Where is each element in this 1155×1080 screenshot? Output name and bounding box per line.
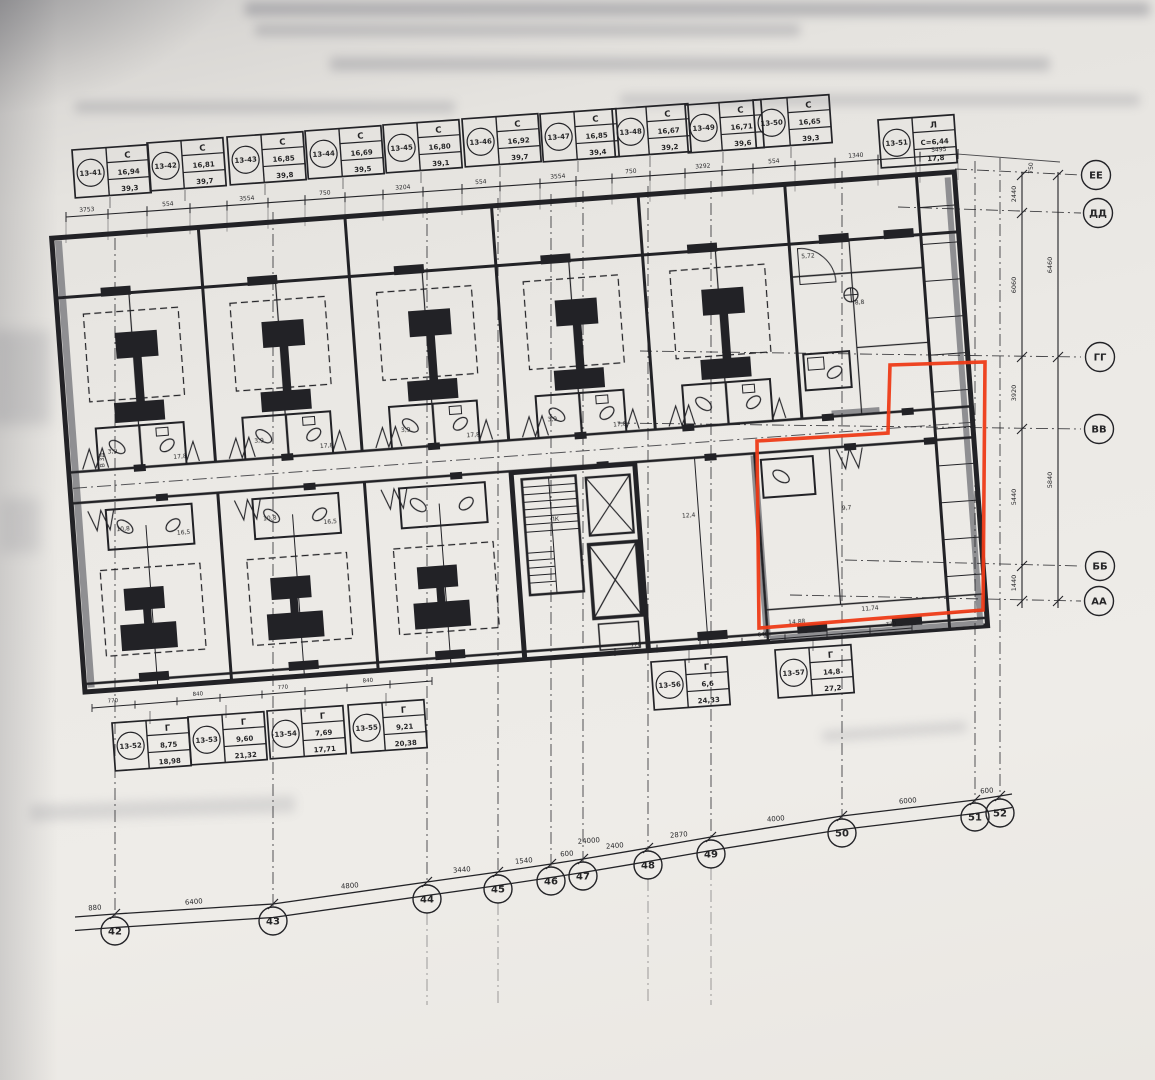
axis-markers-right: ЕЕДДГГВВББАА: [1082, 161, 1115, 616]
stamp-apartment-number: 13-44: [312, 149, 335, 159]
fixture: [451, 415, 470, 433]
wall-block: [134, 357, 145, 403]
wall-line: [108, 177, 150, 180]
door-swing: [228, 437, 255, 459]
fixture: [408, 496, 428, 515]
dim-label: 6460: [1046, 257, 1054, 274]
stamp-area-value: 9,21: [396, 722, 414, 731]
stamp-area-value: 21,32: [235, 751, 258, 761]
room-label: 3,9: [547, 416, 557, 424]
apartment-stamp: 13-52Г8,7518,98: [112, 718, 191, 771]
axis-label: ВВ: [1091, 425, 1106, 436]
dim-label: 2870: [670, 830, 688, 839]
stamp-apartment-number: 13-51: [885, 138, 908, 148]
door-swing: [381, 488, 408, 510]
stamp-area-value: 16,69: [350, 148, 373, 158]
wall-line: [528, 559, 555, 561]
room-label: 16,5: [177, 529, 191, 537]
apartment-stamp: 13-43С16,8539,8: [227, 132, 306, 185]
wall-line: [811, 677, 853, 680]
wall-line: [549, 477, 557, 593]
room-label: 16,5: [323, 518, 337, 526]
wall-line: [787, 98, 790, 146]
dim-label: 770: [885, 621, 896, 628]
wall-line: [384, 732, 426, 735]
wall-block: [924, 437, 936, 445]
axis-label: 51: [968, 813, 982, 824]
room-outline: [449, 406, 462, 415]
axis-label: ЕЕ: [1089, 171, 1103, 182]
axis-label: 48: [641, 861, 655, 872]
stamp-area-value: 9,60: [236, 734, 254, 743]
wall-block: [697, 630, 728, 641]
wall-line: [529, 581, 556, 583]
wall-block: [554, 367, 605, 391]
stamp-area-value: 16,94: [117, 167, 140, 177]
axis-label: 42: [108, 927, 122, 938]
wall-block: [720, 314, 731, 360]
dim-chain: [75, 794, 1012, 917]
stamp-area-value: 27,2: [824, 684, 842, 693]
wall-line: [498, 146, 540, 149]
room-outline: [596, 395, 609, 404]
stamp-area-value: 39,6: [734, 139, 752, 148]
stamp-area-value: 39,8: [276, 171, 294, 180]
dim-label: 3292: [695, 162, 711, 170]
stamp-column-header: Г: [827, 650, 834, 660]
dim-label: 750: [1028, 162, 1035, 174]
wall-line: [694, 458, 708, 646]
stamp-area-value: 16,85: [585, 131, 608, 141]
door-swing: [625, 409, 639, 430]
wall-block: [822, 413, 834, 421]
stamp-apartment-number: 13-41: [79, 168, 102, 178]
dim-label: 840: [362, 678, 373, 685]
door-swing: [836, 447, 863, 469]
wall-block: [883, 228, 914, 239]
wall-line: [849, 240, 862, 415]
stamp-apartment-number: 13-47: [547, 132, 570, 142]
wall-line: [912, 118, 915, 166]
wall-block: [435, 649, 466, 660]
wall-block: [413, 600, 471, 630]
stamp-column-header: Г: [164, 723, 171, 733]
stamp-area-value: 24,33: [698, 696, 721, 706]
stamp-area-value: 20,38: [395, 739, 418, 749]
wall-block: [574, 432, 586, 440]
wall-block: [704, 453, 716, 461]
wall-block: [682, 424, 694, 432]
door-swing: [185, 441, 199, 462]
wall-line: [527, 551, 554, 553]
wall-block: [261, 389, 312, 413]
apartment-stamp: 13-54Г7,6917,71: [267, 706, 346, 759]
wall-line: [785, 184, 802, 418]
dim-total-label: 24000: [577, 836, 600, 846]
axis-label: ГГ: [1094, 353, 1107, 364]
wall-block: [450, 472, 462, 480]
dim-label: 2440: [1010, 186, 1018, 203]
wall-block: [115, 330, 159, 359]
dim-label: 770: [107, 698, 118, 705]
dim-label: 2400: [606, 841, 624, 850]
stamp-area-value: 16,71: [730, 122, 753, 132]
axis-label: АА: [1091, 597, 1107, 608]
axis-label: ДД: [1089, 209, 1107, 220]
wall-block: [288, 660, 319, 671]
stamp-area-value: 16,67: [657, 126, 680, 136]
wall-block: [394, 264, 425, 275]
stamp-area-value: 16,65: [798, 117, 821, 127]
stamp-column-header: С: [199, 143, 206, 153]
stamp-column-header: С: [805, 100, 812, 110]
wall-line: [198, 227, 215, 461]
wall-block: [156, 493, 168, 501]
dim-label: 5440: [1010, 489, 1018, 506]
axis-label: 45: [491, 885, 505, 896]
wall-block: [55, 240, 95, 687]
stamp-area-value: 7,69: [315, 728, 333, 737]
apartment-stamp: 13-53Г9,6021,32: [188, 712, 267, 765]
dim-label: 840: [192, 691, 203, 698]
axis-label: ББ: [1092, 562, 1107, 573]
wall-line: [958, 154, 1060, 162]
door-swing: [478, 420, 492, 441]
wall-line: [792, 267, 924, 277]
wall-block: [700, 356, 751, 380]
fixture: [457, 495, 476, 513]
stamp-column-header: Г: [240, 717, 247, 727]
axis-label: 52: [993, 809, 1007, 820]
dim-label: 600: [980, 786, 994, 795]
wall-line: [646, 107, 649, 155]
apartment-stamp: 13-48С16,6739,2: [612, 104, 691, 157]
stamp-column-header: С: [279, 137, 286, 147]
wall-line: [301, 709, 304, 757]
room-label: 11,74: [861, 605, 879, 613]
stamp-area-value: 17,71: [314, 745, 337, 755]
apartment-stamp: 13-44С16,6939,5: [305, 126, 384, 179]
stamp-apartment-number: 13-56: [658, 680, 681, 690]
door-arc: [797, 246, 836, 285]
wall-block: [901, 408, 913, 416]
stamp-area-value: 39,5: [354, 165, 372, 174]
stamp-apartment-number: 13-49: [692, 123, 715, 133]
apartment-stamp: 13-49С16,7139,6: [685, 100, 764, 153]
fixture: [598, 404, 617, 422]
axis-label: 43: [266, 917, 280, 928]
wall-line: [850, 288, 851, 302]
wall-line: [589, 541, 642, 618]
wall-line: [218, 493, 232, 681]
door-swing: [374, 426, 401, 448]
wall-line: [529, 574, 556, 576]
apartment-stamp: 13-55Г9,2120,38: [348, 700, 427, 753]
stamp-apartment-number: 13-48: [619, 127, 642, 137]
stamp-area-value: 8,75: [160, 740, 178, 749]
stamp-column-header: С: [357, 131, 364, 141]
wall-block: [261, 319, 305, 348]
wall-line: [719, 103, 722, 151]
wall-line: [491, 206, 508, 440]
wall-line: [148, 750, 190, 753]
stamp-column-header: С: [664, 109, 671, 119]
dimension-chains: 8806400480034401540600240028704000600060…: [66, 146, 1063, 931]
room-label: 17,8: [466, 431, 480, 439]
room-outline: [302, 416, 315, 425]
fixture: [158, 436, 177, 454]
door-swing: [771, 398, 785, 419]
stamp-apartment-number: 13-45: [390, 143, 413, 153]
dim-label: 6060: [1010, 277, 1018, 294]
wall-block: [143, 609, 152, 624]
axis-markers-bottom: 4243444546474849505152: [101, 799, 1014, 945]
dim-label: 1340: [848, 152, 864, 160]
scanned-floor-plan-page: { "colors":{"ink":"#232327","gray_wall":…: [0, 0, 1155, 1080]
axis-label: 44: [420, 895, 434, 906]
wall-block: [945, 177, 984, 622]
wall-line: [181, 141, 184, 189]
stamp-area-value: 39,4: [589, 148, 607, 157]
wall-block: [407, 378, 458, 402]
stamp-area-value: 16,81: [192, 160, 215, 170]
dim-label: 770: [277, 684, 288, 691]
stamp-area-value: 17,8: [927, 154, 945, 163]
wall-block: [597, 461, 609, 469]
stamp-apartment-number: 13-53: [195, 735, 218, 745]
wall-line: [345, 217, 362, 451]
wall-line: [339, 129, 342, 177]
stamp-column-header: С: [592, 114, 599, 124]
apartment-stamp: 13-47С16,8539,4: [540, 109, 619, 162]
room-label: 5,72: [801, 252, 815, 260]
room-outline: [742, 384, 755, 393]
apartment-stamp: 13-51ЛС=6,4417,8: [878, 115, 957, 168]
stamp-area-value: 16,92: [507, 136, 530, 146]
wall-line: [574, 112, 577, 160]
wall-line: [303, 738, 345, 741]
axis-label: 49: [704, 850, 718, 861]
stamp-area-value: 39,1: [432, 159, 450, 168]
wall-line: [809, 648, 812, 696]
wall-block: [540, 253, 571, 264]
dim-label: 3554: [550, 173, 566, 181]
wall-block: [120, 621, 178, 651]
room-outline: [399, 482, 488, 528]
wall-line: [261, 135, 264, 183]
axis-label: 47: [576, 872, 590, 883]
stamp-area-value: 39,3: [802, 134, 820, 143]
apartment-stamp: 13-41С16,9439,3: [72, 145, 151, 198]
wall-line: [341, 158, 383, 161]
wall-block: [428, 442, 440, 450]
stamp-apartment-number: 13-42: [154, 161, 177, 171]
room-label: 17,8: [613, 421, 627, 429]
stamp-apartment-number: 13-50: [760, 118, 783, 128]
dim-label: 3440: [453, 865, 471, 874]
wall-block: [290, 598, 299, 613]
wall-line: [648, 136, 690, 139]
wall-block: [687, 243, 718, 254]
door-swing: [668, 405, 695, 427]
wall-line: [685, 660, 688, 708]
dim-label: 4000: [767, 814, 785, 823]
wall-line: [576, 141, 618, 144]
room-label: В 3Д: [99, 452, 107, 467]
stamp-column-header: Г: [319, 711, 326, 721]
wall-line: [687, 689, 729, 692]
dim-label: 880: [88, 903, 102, 912]
stamp-apartment-number: 13-43: [234, 155, 257, 165]
wall-block: [303, 483, 315, 491]
dim-label: 6000: [899, 796, 917, 805]
dim-label: 750: [319, 189, 331, 197]
room-label: 9,7: [842, 504, 852, 512]
stamp-area-value: 39,7: [196, 177, 214, 186]
room-outline: [803, 351, 852, 390]
dim-label: 6400: [185, 897, 203, 906]
wall-block: [417, 564, 459, 589]
stamp-area-value: 16,80: [428, 142, 451, 152]
stamp-apartment-number: 13-46: [469, 137, 492, 147]
wall-line: [638, 195, 655, 429]
dim-label: 3753: [79, 206, 95, 214]
wall-line: [382, 703, 385, 751]
wall-block: [844, 443, 856, 451]
wall-line: [857, 342, 929, 347]
stamp-area-value: 39,3: [121, 184, 139, 193]
room-label: 8,8: [855, 299, 865, 307]
dim-label: 3920: [1010, 385, 1018, 402]
wall-line: [789, 127, 831, 130]
room-label: 3,9: [401, 426, 411, 434]
wall-block: [281, 453, 293, 461]
wall-line: [496, 117, 499, 165]
wall-line: [417, 123, 420, 171]
floor-plan-drawing: В 3ДЛК17,83,917,83,917,83,917,83,916,510…: [0, 0, 1155, 1080]
wall-block: [436, 587, 445, 602]
door-swing: [332, 430, 346, 451]
room-label: 10,8: [263, 515, 277, 523]
dim-label: 3204: [395, 184, 411, 192]
dim-label: 5840: [1046, 472, 1054, 489]
wall-block: [133, 464, 145, 472]
fixture: [304, 426, 323, 444]
door-swing: [234, 499, 261, 521]
dim-label: 1540: [515, 856, 533, 865]
building-linework: В 3ДЛК17,83,917,83,917,83,917,83,916,510…: [52, 172, 988, 692]
dim-label: 750: [625, 168, 637, 176]
dim-label: 770: [630, 642, 641, 649]
fixture: [771, 468, 792, 486]
axis-label: 50: [835, 829, 849, 840]
wall-line: [419, 152, 461, 155]
stamp-column-header: С: [435, 125, 442, 135]
room-outline: [807, 357, 824, 370]
room-label: ЛК: [550, 516, 560, 524]
wall-line: [183, 170, 225, 173]
stamp-apartment-number: 13-55: [355, 723, 378, 733]
room-label: 12,4: [682, 512, 696, 520]
stamp-apartment-number: 13-57: [782, 668, 805, 678]
dim-label: 554: [768, 158, 780, 166]
stamp-column-header: Л: [930, 120, 938, 130]
wall-block: [819, 233, 850, 244]
dim-label: 4800: [341, 881, 359, 890]
apartment-stamps-bottom: 13-52Г8,7518,9813-53Г9,6021,3213-54Г7,69…: [112, 638, 854, 771]
dim-label: 600: [560, 849, 574, 858]
wall-block: [270, 575, 312, 600]
stamp-column-header: С: [737, 105, 744, 115]
wall-block: [408, 308, 452, 337]
room-label: 3,9: [107, 448, 117, 456]
apartment-stamp: 13-56Г6,624,33: [651, 657, 730, 710]
stamp-area-value: 39,7: [511, 153, 529, 162]
dim-label: 640: [757, 632, 768, 639]
wall-line: [106, 148, 109, 196]
dim-label: 554: [475, 178, 487, 186]
wall-line: [721, 132, 763, 135]
room-outline: [156, 427, 169, 436]
stamp-column-header: С: [514, 119, 521, 129]
wall-line: [955, 169, 1081, 175]
wall-block: [114, 399, 165, 423]
wall-block: [701, 287, 745, 316]
stamp-area-value: 6,6: [701, 680, 714, 689]
wall-line: [263, 164, 305, 167]
axis-label: 46: [544, 877, 558, 888]
wall-block: [555, 297, 599, 326]
room-label: 17,8: [173, 453, 187, 461]
wall-line: [829, 448, 840, 605]
wall-block: [427, 335, 438, 381]
apartment-stamp: 13-50С16,6539,3: [753, 95, 832, 148]
stamp-apartment-number: 13-54: [274, 729, 297, 739]
door-swing: [88, 509, 115, 531]
wall-line: [69, 406, 972, 472]
wall-line: [364, 482, 378, 670]
stamp-area-value: 39,2: [661, 143, 679, 152]
apartment-stamps-top: 13-41С16,9439,313-42С16,8139,713-43С16,8…: [72, 95, 957, 208]
apartment-stamp: 13-45С16,8039,1: [383, 120, 462, 173]
dim-label: 554: [162, 200, 174, 208]
wall-block: [139, 671, 170, 682]
fixture: [825, 364, 844, 381]
stamp-column-header: С: [124, 150, 131, 160]
wall-line: [224, 744, 266, 747]
stamp-area-value: 16,85: [272, 154, 295, 164]
dim-label: 1440: [1010, 575, 1018, 592]
stamp-area-value: 14,8: [823, 667, 841, 676]
wall-line: [845, 560, 1081, 566]
door-swing: [521, 415, 548, 437]
wall-line: [898, 207, 1081, 213]
wall-line: [586, 475, 634, 536]
stamp-column-header: Г: [703, 662, 710, 672]
wall-block: [124, 586, 166, 611]
fixture: [744, 393, 763, 411]
room-label: 10,8: [116, 525, 130, 533]
stamp-column-header: Г: [400, 705, 407, 715]
apartment-stamp: 13-46С16,9239,7: [462, 114, 541, 167]
stamp-apartment-number: 13-52: [119, 741, 142, 751]
wall-line: [146, 721, 149, 769]
dim-label: 3554: [239, 195, 255, 203]
apartment-stamp: 13-42С16,8139,7: [147, 138, 226, 191]
room-label: 3,9: [254, 437, 264, 445]
wall-block: [280, 346, 291, 392]
wall-line: [528, 566, 555, 568]
